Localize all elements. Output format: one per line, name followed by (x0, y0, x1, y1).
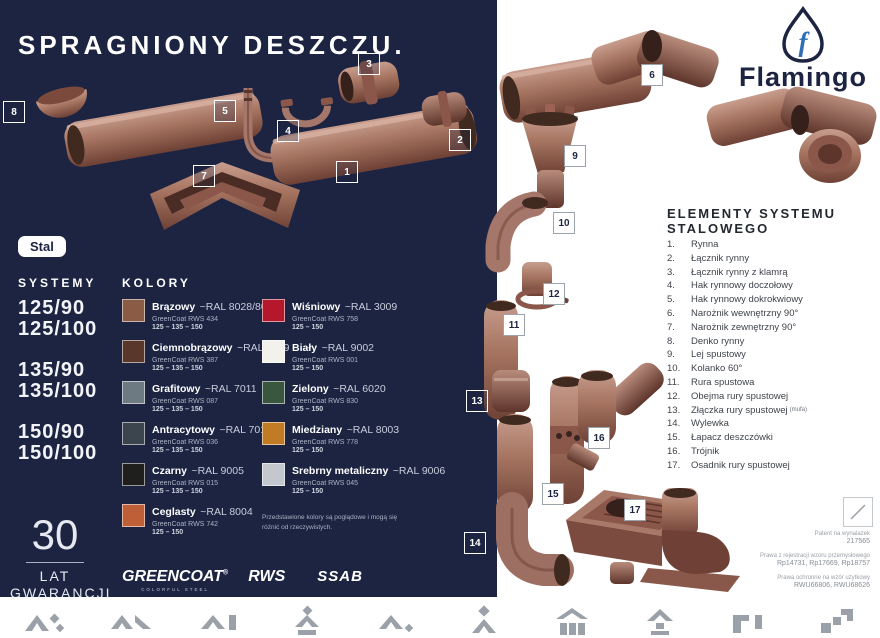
footer-pictogram-chevron-dot-icon (375, 605, 417, 635)
part-denko-rynny (34, 82, 91, 123)
part-naroznik-prawy (704, 84, 879, 183)
footer-pictogram-chevron-bar-icon (199, 605, 241, 635)
diagram-badge-2: 2 (449, 129, 471, 151)
diagram-badge-3: 3 (358, 53, 380, 75)
diagram-badge-11: 11 (503, 314, 525, 336)
diagram-badge-10: 10 (553, 212, 575, 234)
gutter-system-diagram (0, 0, 880, 597)
diagram-badge-1: 1 (336, 161, 358, 183)
diagram-badge-6: 6 (641, 64, 663, 86)
footer-pictogram-building-icon (551, 605, 593, 635)
diagram-badge-9: 9 (564, 145, 586, 167)
footer-pictogram-corners-icon (727, 605, 769, 635)
footer-pictogram-person-icon (463, 605, 505, 635)
diagram-badge-4: 4 (277, 120, 299, 142)
diagram-badge-14: 14 (464, 532, 486, 554)
footer-pictogram-strip (0, 597, 880, 638)
diagram-badge-7: 7 (193, 165, 215, 187)
brochure-page: SPRAGNIONY DESZCZU. Stal SYSTEMY 125/90 … (0, 0, 880, 638)
diagram-badge-15: 15 (542, 483, 564, 505)
part-wylewka (512, 508, 570, 586)
part-zlaczka-mufa (492, 370, 530, 412)
footer-pictogram-house-icon (287, 605, 329, 635)
footer-pictogram-steps-icon (815, 605, 857, 635)
part-kolanko (498, 197, 548, 260)
diagram-badge-13: 13 (466, 390, 488, 412)
diagram-badge-5: 5 (214, 100, 236, 122)
diagram-badge-16: 16 (588, 427, 610, 449)
footer-pictogram-double-chevron-icon (111, 605, 153, 635)
footer-pictogram-eject-icon (639, 605, 681, 635)
footer-pictogram-chevron-dots-icon (23, 605, 65, 635)
diagram-badge-8: 8 (3, 101, 25, 123)
diagram-badge-12: 12 (543, 283, 565, 305)
diagram-badge-17: 17 (624, 499, 646, 521)
